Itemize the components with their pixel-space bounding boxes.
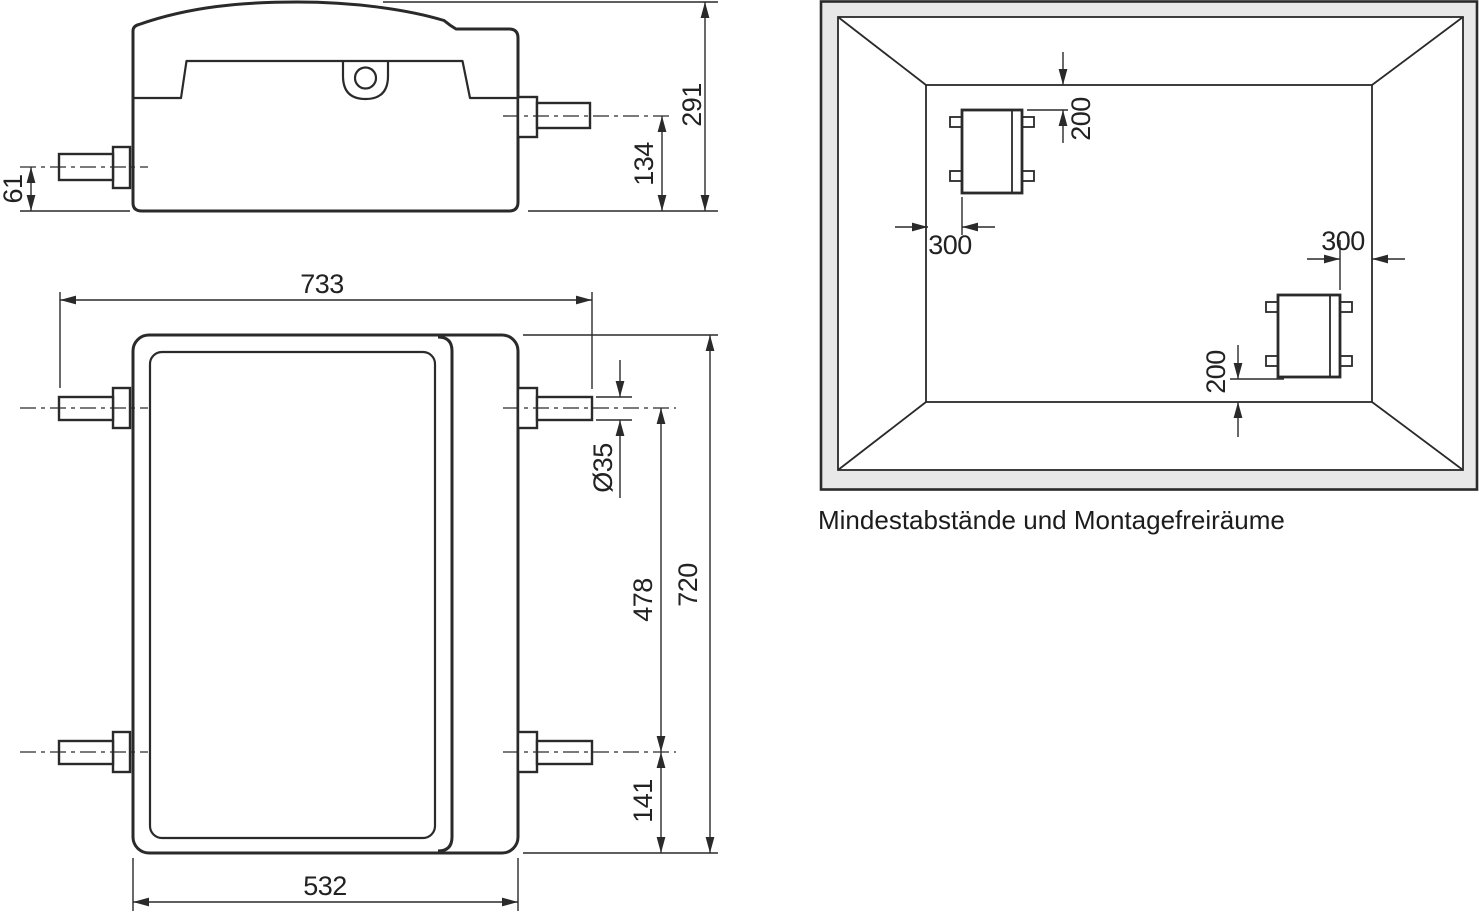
top-view-drawing: 733 Ø35 478 720 141 532 (20, 269, 718, 911)
dimension-label-left-300: 300 (928, 230, 972, 260)
unit-stub (950, 171, 962, 181)
side-right-pipe (518, 97, 590, 137)
dimension-label-478: 478 (628, 578, 658, 622)
unit-stub (950, 117, 962, 127)
dimension-label-right-300: 300 (1321, 226, 1365, 256)
dimension-drawing-canvas: 61 134 291 (0, 0, 1479, 913)
dimension-label-top-200: 200 (1066, 97, 1096, 141)
dimension-label-61: 61 (0, 174, 28, 203)
unit-stub (1266, 356, 1278, 366)
keyhole-hole (355, 68, 376, 89)
clearance-diagram: 200 300 300 200 (821, 2, 1477, 490)
unit-stub (1340, 302, 1352, 312)
dimension-label-720: 720 (673, 563, 703, 607)
dimension-134 (528, 116, 718, 211)
side-view-drawing: 61 134 291 (0, 2, 718, 211)
dimension-label-532: 532 (303, 871, 347, 901)
mounted-unit-upper (950, 110, 1034, 193)
appliance-body-outline (133, 2, 518, 211)
dimension-label-733: 733 (300, 269, 344, 299)
unit-stub (1022, 117, 1034, 127)
top-view-body-outline (133, 335, 518, 853)
unit-stub (1266, 302, 1278, 312)
pipe-flange (518, 97, 537, 137)
technical-drawing-page: 61 134 291 (0, 0, 1479, 913)
unit-stub (1340, 356, 1352, 366)
dimension-label-134: 134 (629, 142, 659, 186)
dimension-label-diameter-35: Ø35 (588, 443, 618, 493)
clearance-caption: Mindestabstände und Montagefreiräume (818, 505, 1285, 535)
dimension-label-141: 141 (628, 779, 658, 823)
unit-stub (1022, 171, 1034, 181)
unit-body (962, 110, 1022, 193)
dimension-label-bottom-200: 200 (1201, 350, 1231, 394)
mounted-unit-lower (1266, 295, 1352, 377)
dimension-label-291: 291 (677, 83, 707, 127)
